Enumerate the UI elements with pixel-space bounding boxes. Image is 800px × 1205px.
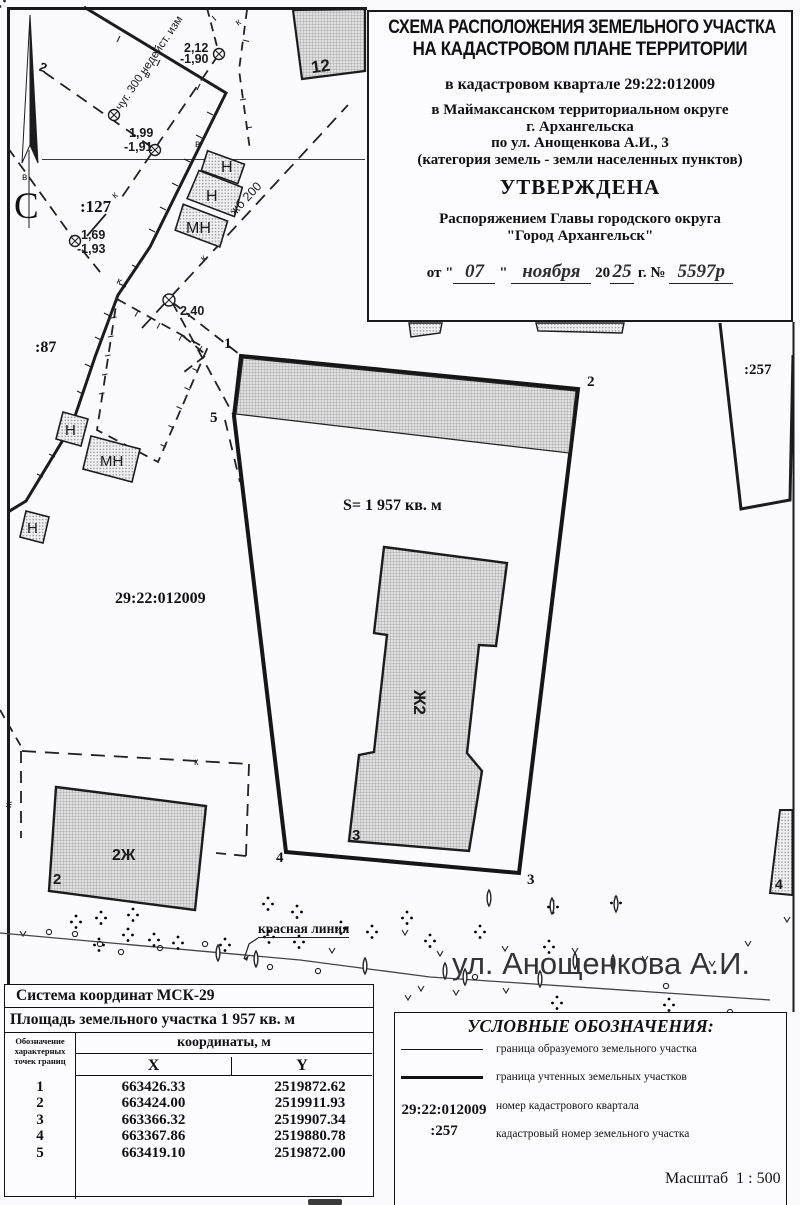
- svg-text::127: :127: [80, 197, 112, 216]
- svg-text:МН: МН: [100, 453, 123, 470]
- svg-text:1: 1: [224, 336, 232, 352]
- svg-text:1,99: 1,99: [129, 126, 153, 140]
- svg-text:2,40: 2,40: [180, 304, 204, 318]
- svg-text:С: С: [14, 186, 39, 227]
- svg-text:29:22:012009: 29:22:012009: [115, 590, 206, 607]
- svg-text:к: к: [198, 253, 209, 264]
- svg-text:Ж2: Ж2: [410, 689, 429, 715]
- svg-text:к: к: [110, 190, 121, 202]
- svg-text:2: 2: [53, 871, 61, 888]
- svg-text:S= 1 957 кв. м: S= 1 957 кв. м: [343, 497, 442, 514]
- svg-text:в: в: [195, 139, 200, 150]
- svg-text:Н: Н: [65, 422, 76, 439]
- svg-text:5: 5: [210, 410, 218, 426]
- svg-text:-1,91: -1,91: [124, 140, 153, 154]
- svg-text:к: к: [233, 17, 243, 29]
- svg-text:в: в: [22, 172, 27, 183]
- svg-text:ж: ж: [3, 800, 15, 809]
- svg-text:4: 4: [276, 850, 284, 866]
- svg-text:2: 2: [37, 59, 49, 76]
- svg-text:3: 3: [527, 872, 535, 888]
- svg-text::257: :257: [744, 362, 772, 378]
- svg-text:Н: Н: [206, 188, 218, 205]
- svg-text:к: к: [194, 757, 199, 768]
- svg-text:Н: Н: [27, 520, 38, 537]
- svg-text:-1,93: -1,93: [77, 242, 106, 256]
- svg-text:1,69: 1,69: [81, 228, 105, 242]
- svg-text:2Ж: 2Ж: [112, 847, 136, 864]
- svg-text:МН: МН: [186, 220, 211, 237]
- svg-text:Н: Н: [221, 159, 233, 176]
- svg-text:2: 2: [587, 374, 595, 390]
- svg-text:-1,90: -1,90: [180, 52, 209, 66]
- svg-text:4: 4: [775, 876, 783, 892]
- svg-text::87: :87: [35, 339, 56, 356]
- svg-text:3: 3: [352, 827, 360, 844]
- svg-text:12: 12: [310, 56, 331, 77]
